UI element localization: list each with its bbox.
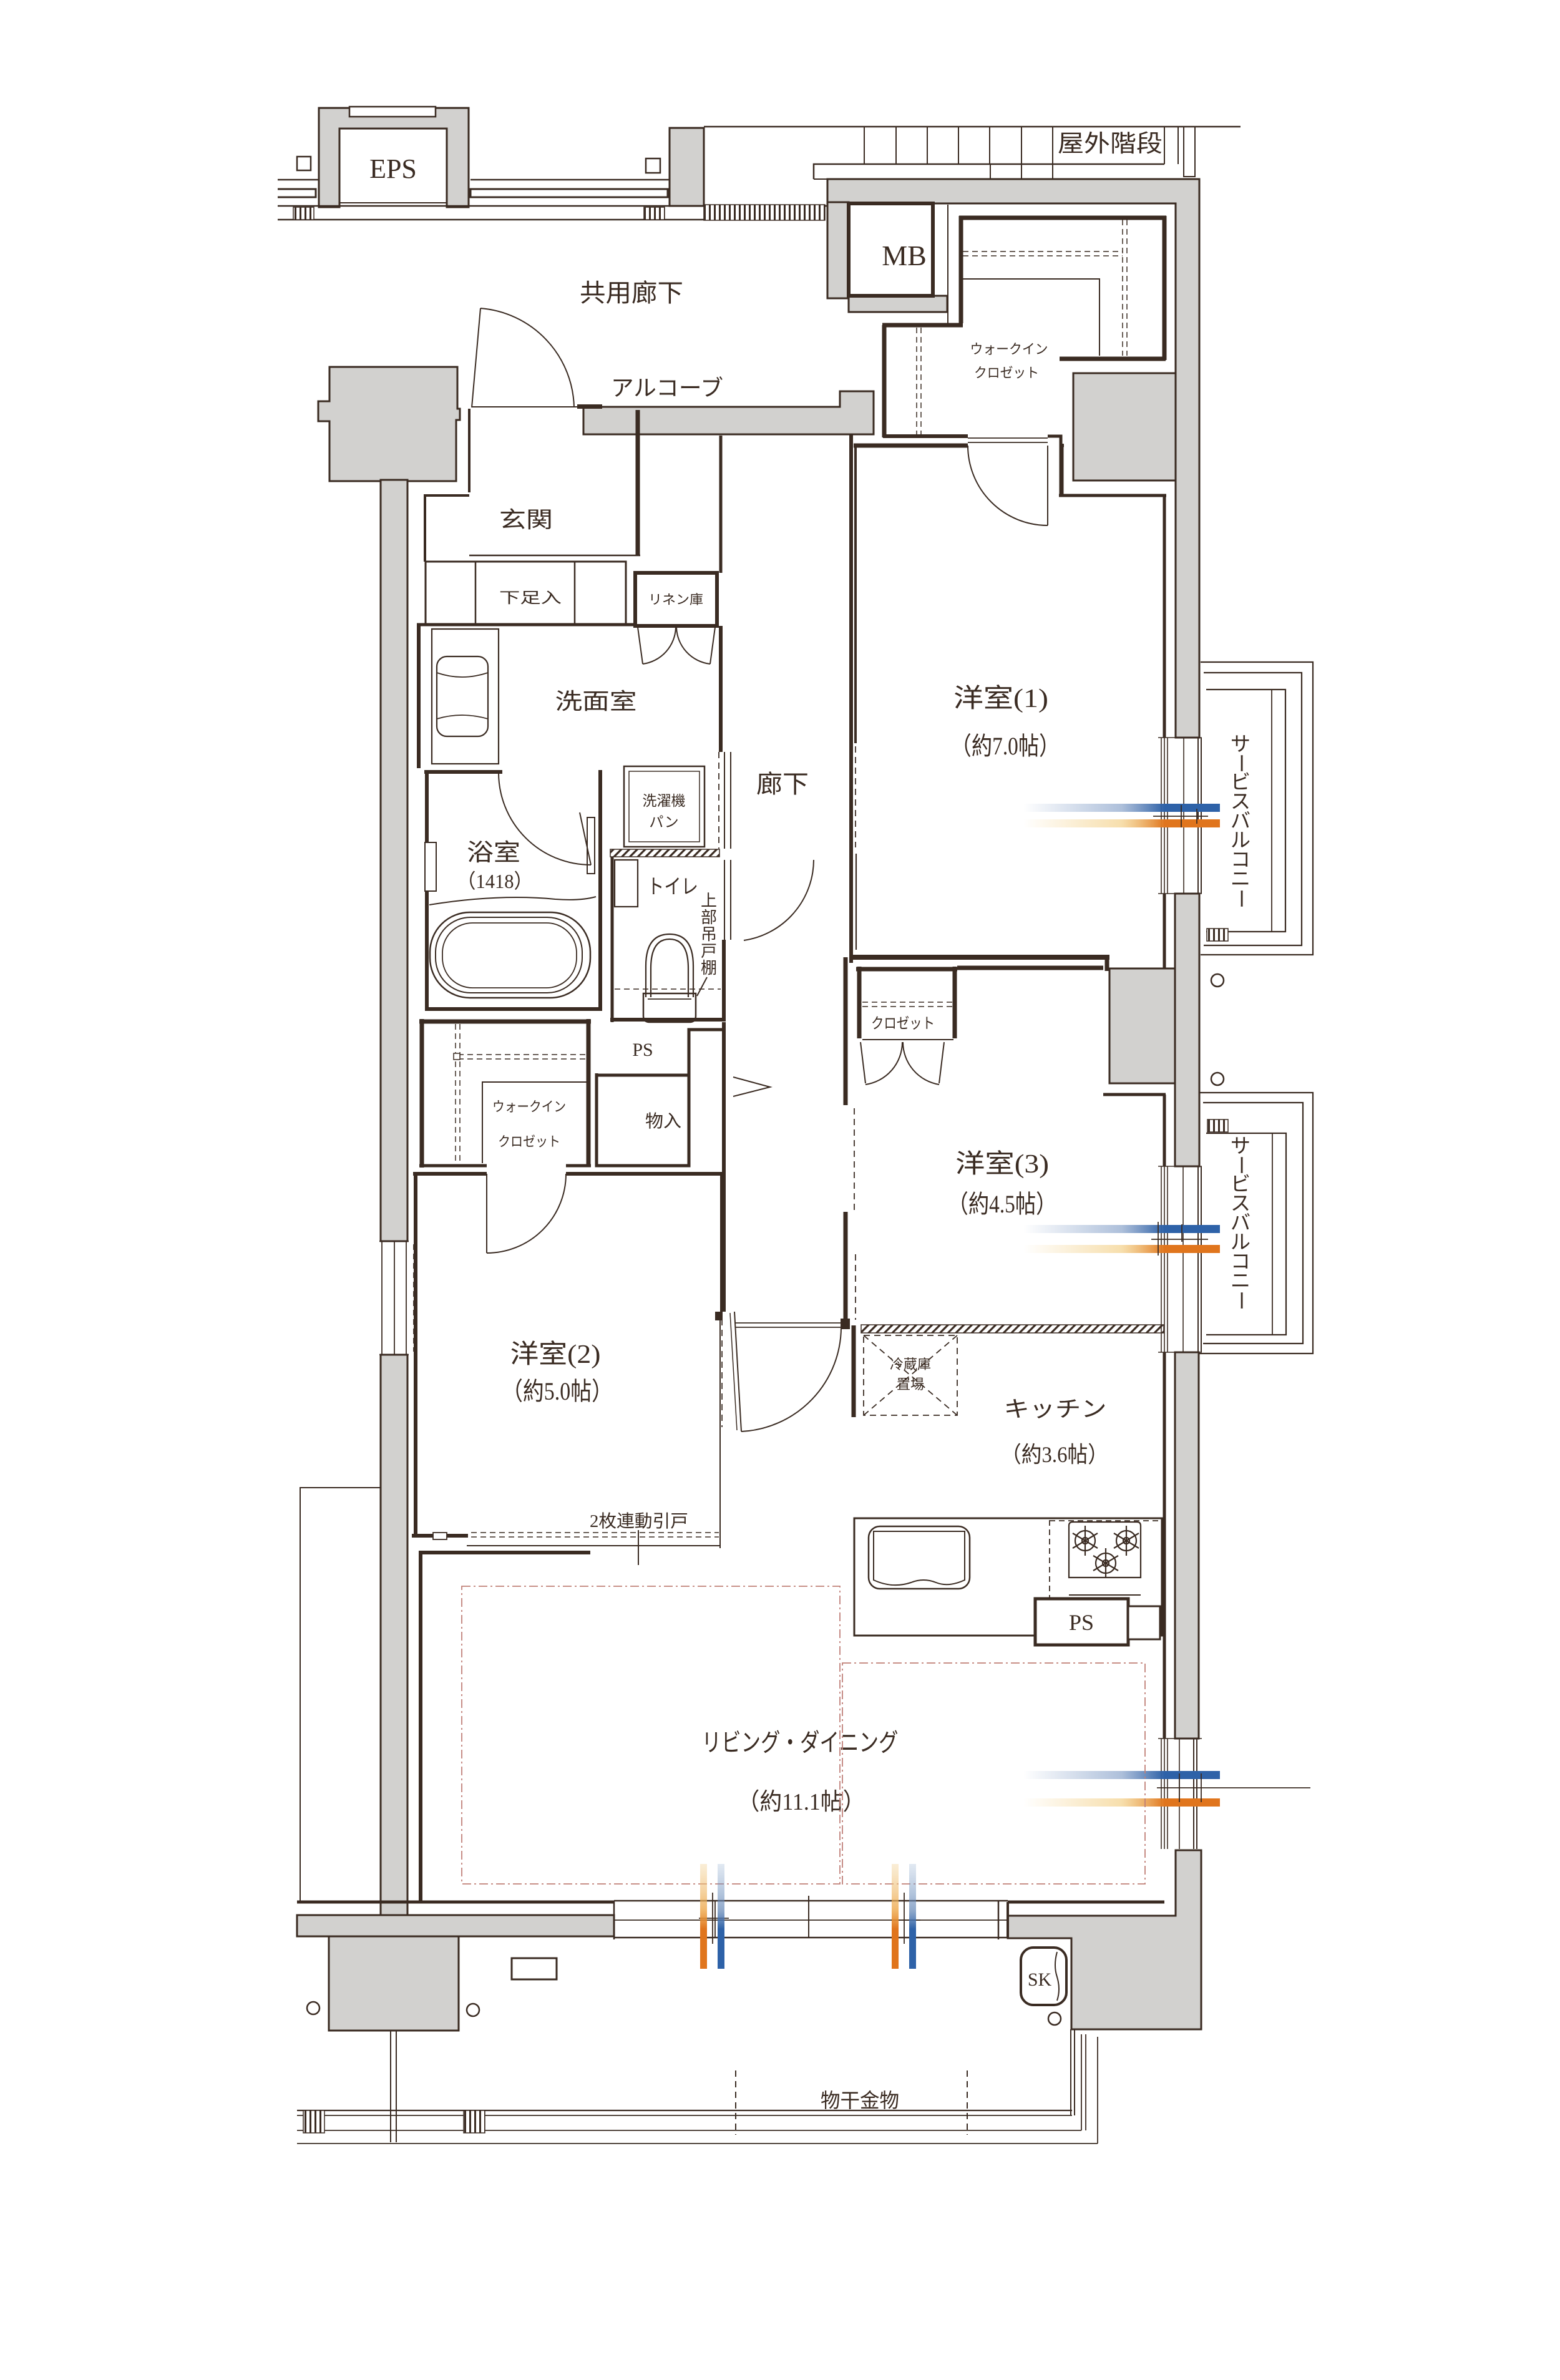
svg-text:ー: ー — [1230, 1290, 1252, 1310]
svg-text:PS: PS — [632, 1040, 653, 1060]
svg-text:2枚連動引戸: 2枚連動引戸 — [590, 1511, 688, 1531]
svg-text:上: 上 — [701, 892, 717, 910]
svg-text:洗濯機: 洗濯機 — [643, 793, 686, 809]
svg-text:棚: 棚 — [701, 959, 717, 977]
svg-text:ウォークイン: ウォークイン — [970, 341, 1048, 357]
svg-text:リネン庫: リネン庫 — [648, 592, 703, 607]
svg-text:共用廊下: 共用廊下 — [580, 279, 683, 307]
svg-text:洋室(3): 洋室(3) — [955, 1149, 1049, 1179]
svg-text:MB: MB — [882, 240, 927, 271]
svg-text:トイレ: トイレ — [647, 876, 698, 899]
svg-text:（約11.1帖）: （約11.1帖） — [738, 1789, 865, 1815]
svg-text:クロゼット: クロゼット — [498, 1134, 560, 1149]
svg-text:（約5.0帖）: （約5.0帖） — [502, 1377, 613, 1405]
svg-text:物入: 物入 — [645, 1111, 681, 1131]
svg-text:EPS: EPS — [369, 154, 417, 184]
svg-text:下足入: 下足入 — [499, 590, 562, 607]
svg-text:リビング・ダイニング: リビング・ダイニング — [702, 1729, 899, 1757]
svg-text:SK: SK — [1028, 1969, 1052, 1990]
svg-text:廊下: 廊下 — [756, 770, 809, 798]
svg-text:（約3.6帖）: （約3.6帖） — [1001, 1442, 1108, 1467]
svg-text:サ: サ — [1231, 1134, 1250, 1157]
svg-text:（約7.0帖）: （約7.0帖） — [951, 732, 1060, 760]
svg-text:戸: 戸 — [701, 942, 717, 960]
svg-text:玄関: 玄関 — [499, 507, 553, 532]
svg-text:洋室(2): 洋室(2) — [510, 1340, 601, 1369]
svg-text:ニ: ニ — [1231, 867, 1250, 890]
svg-text:冷蔵庫: 冷蔵庫 — [890, 1357, 931, 1372]
svg-text:パン: パン — [649, 814, 678, 830]
svg-text:ー: ー — [1230, 889, 1252, 909]
svg-text:ニ: ニ — [1231, 1269, 1250, 1292]
svg-text:置場: 置場 — [897, 1377, 924, 1392]
svg-text:ウォークイン: ウォークイン — [492, 1099, 566, 1114]
svg-text:サ: サ — [1231, 733, 1250, 755]
svg-text:（1418）: （1418） — [457, 870, 533, 892]
svg-text:アルコーブ: アルコーブ — [611, 376, 723, 401]
svg-text:洗面室: 洗面室 — [555, 689, 637, 714]
svg-text:部: 部 — [701, 909, 717, 927]
svg-text:吊: 吊 — [701, 925, 717, 944]
svg-text:浴室: 浴室 — [467, 840, 520, 866]
svg-text:PS: PS — [1069, 1610, 1094, 1635]
svg-text:洋室(1): 洋室(1) — [953, 684, 1048, 713]
svg-text:クロゼット: クロゼット — [871, 1015, 935, 1032]
svg-text:物干金物: 物干金物 — [821, 2089, 899, 2112]
svg-text:屋外階段: 屋外階段 — [1058, 131, 1163, 157]
svg-text:クロゼット: クロゼット — [974, 365, 1039, 381]
svg-text:キッチン: キッチン — [1004, 1397, 1107, 1422]
svg-text:（約4.5帖）: （約4.5帖） — [948, 1190, 1057, 1218]
